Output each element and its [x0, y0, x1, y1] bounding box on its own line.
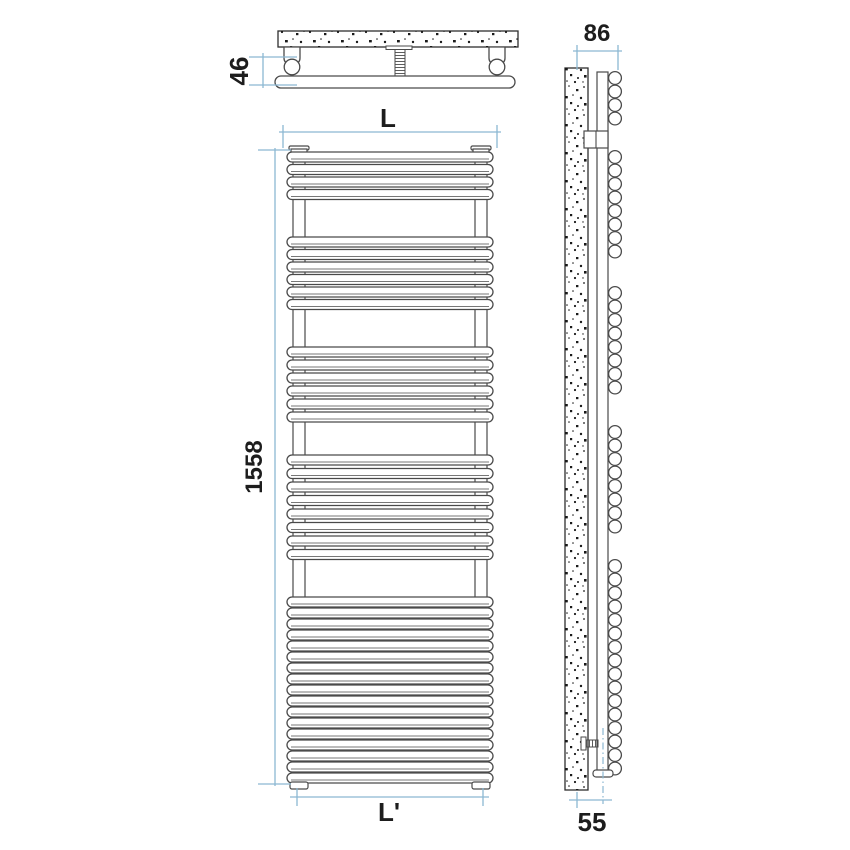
dimension-L-prime-label: L'	[378, 797, 400, 827]
dimension-L-label: L	[380, 103, 396, 133]
tube-end-circle	[609, 573, 622, 586]
radiator-bar	[287, 685, 493, 695]
top-screw-flange	[386, 46, 412, 50]
tube-end-circle	[609, 641, 622, 654]
tube-end-circle	[609, 314, 622, 327]
tube-end-circle	[609, 466, 622, 479]
tube-end-circle	[609, 85, 622, 98]
radiator-bar	[287, 300, 493, 310]
top-view: 46	[224, 31, 518, 88]
radiator-bar	[287, 496, 493, 506]
side-view: 86 55	[565, 20, 622, 837]
tube-end-circle	[609, 654, 622, 667]
tube-end-circle	[609, 164, 622, 177]
radiator-bar	[287, 641, 493, 651]
radiator-bar	[287, 237, 493, 247]
radiator-bar	[287, 287, 493, 297]
radiator-bar	[287, 482, 493, 492]
radiator-bar	[287, 262, 493, 272]
tube-end-circle	[609, 600, 622, 613]
tube-end-circle	[609, 722, 622, 735]
radiator-bar	[287, 523, 493, 533]
radiator-bar	[287, 373, 493, 383]
tube-end-circle	[609, 287, 622, 300]
tube-end-circle	[609, 99, 622, 112]
radiator-bar	[287, 412, 493, 422]
radiator-bar	[287, 190, 493, 200]
radiator-bar	[287, 652, 493, 662]
tube-end-circle	[609, 112, 622, 125]
radiator-bar	[287, 718, 493, 728]
radiator-bar	[287, 177, 493, 187]
tube-end-circle	[609, 151, 622, 164]
tube-end-circle	[609, 327, 622, 340]
radiator-bar	[287, 165, 493, 175]
radiator-bar	[287, 597, 493, 607]
radiator-bar	[287, 674, 493, 684]
radiator-bar	[287, 630, 493, 640]
top-view-wall-speckle	[278, 31, 518, 47]
tube-end-circle	[609, 668, 622, 681]
tube-end-circle	[609, 178, 622, 191]
radiator-bar	[287, 250, 493, 260]
radiator-bar	[287, 536, 493, 546]
tube-end-circle	[609, 426, 622, 439]
tube-end-circle	[609, 205, 622, 218]
radiator-bar	[287, 469, 493, 479]
dimension-1558-label: 1558	[241, 440, 268, 493]
radiator-bar	[287, 509, 493, 519]
dimension-46-label: 46	[224, 57, 254, 86]
tube-end-circle	[609, 341, 622, 354]
radiator-bar	[287, 773, 493, 783]
tube-end-circle	[609, 735, 622, 748]
tube-end-circle	[609, 614, 622, 627]
tube-end-circle	[609, 708, 622, 721]
side-view-wall-speckle	[565, 68, 588, 790]
tube-end-circle	[609, 520, 622, 533]
tube-end-circle	[609, 72, 622, 85]
dimension-86	[573, 45, 622, 70]
radiator-bar	[287, 399, 493, 409]
dimension-55-label: 55	[578, 807, 607, 837]
tube-end-circle	[609, 681, 622, 694]
top-front-tube	[275, 76, 515, 88]
top-screw-shaft	[395, 50, 405, 77]
tube-end-circle	[609, 695, 622, 708]
radiator-bar	[287, 550, 493, 560]
radiator-bar	[287, 762, 493, 772]
tube-end-circle	[609, 453, 622, 466]
side-bottom-screw-shaft	[586, 740, 598, 747]
radiator-bar	[287, 751, 493, 761]
dimension-55	[569, 792, 612, 808]
radiator-bar	[287, 729, 493, 739]
radiator-bar	[287, 740, 493, 750]
tube-end-circle	[609, 627, 622, 640]
radiator-bar	[287, 386, 493, 396]
radiator-bar	[287, 347, 493, 357]
side-tube-circles	[609, 72, 622, 775]
tube-end-circle	[609, 507, 622, 520]
tube-end-circle	[609, 300, 622, 313]
radiator-bar	[287, 619, 493, 629]
top-rail-circle-left	[284, 59, 300, 75]
tube-end-circle	[609, 354, 622, 367]
tube-end-circle	[609, 493, 622, 506]
radiator-bar	[287, 707, 493, 717]
tube-end-circle	[609, 368, 622, 381]
tube-end-circle	[609, 232, 622, 245]
radiator-bar	[287, 152, 493, 162]
tube-end-circle	[609, 191, 622, 204]
radiator-bar	[287, 275, 493, 285]
side-collector-rail	[597, 72, 608, 771]
front-view: L 1558 L'	[241, 103, 501, 827]
side-bottom-screw-plate	[581, 737, 586, 750]
tube-end-circle	[609, 439, 622, 452]
tube-end-circle	[609, 218, 622, 231]
radiator-bar	[287, 455, 493, 465]
dimension-86-label: 86	[584, 20, 611, 47]
radiator-bar	[287, 696, 493, 706]
tube-end-circle	[609, 245, 622, 258]
radiator-bar	[287, 663, 493, 673]
tube-end-circle	[609, 587, 622, 600]
tube-end-circle	[609, 749, 622, 762]
drawing-canvas: 46 L 1558	[0, 0, 850, 850]
tube-end-circle	[609, 480, 622, 493]
tube-end-circle	[609, 560, 622, 573]
radiator-bar	[287, 360, 493, 370]
front-bars	[287, 152, 493, 783]
tube-end-circle	[609, 381, 622, 394]
top-rail-circle-right	[489, 59, 505, 75]
radiator-technical-drawing: 46 L 1558	[0, 0, 850, 850]
radiator-bar	[287, 608, 493, 618]
